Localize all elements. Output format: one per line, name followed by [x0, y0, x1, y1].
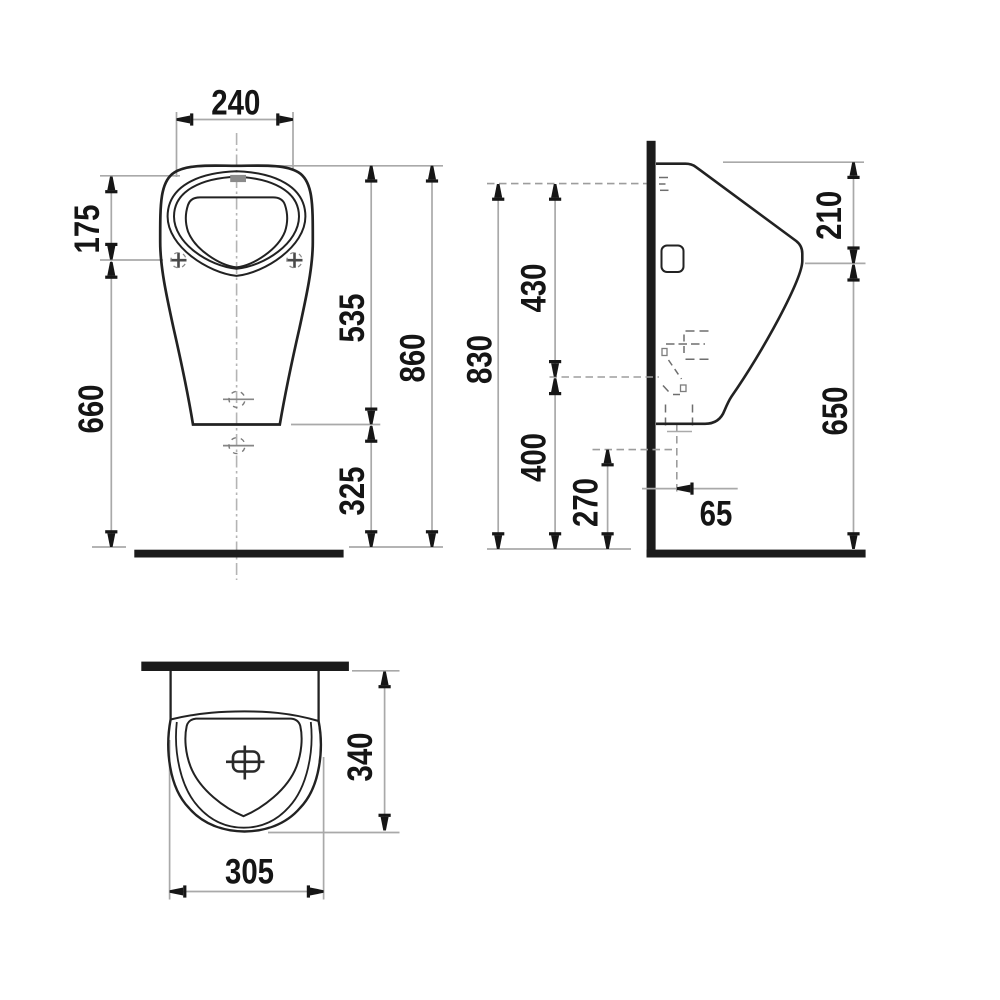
svg-text:270: 270 [566, 478, 605, 527]
svg-text:210: 210 [810, 191, 849, 240]
svg-text:660: 660 [72, 384, 111, 433]
svg-text:175: 175 [68, 204, 107, 253]
svg-text:430: 430 [514, 263, 553, 312]
svg-text:65: 65 [700, 494, 733, 533]
svg-text:240: 240 [211, 83, 260, 122]
svg-text:340: 340 [341, 732, 380, 781]
svg-text:860: 860 [393, 333, 432, 382]
svg-text:400: 400 [514, 433, 553, 482]
svg-text:535: 535 [333, 293, 372, 342]
svg-text:650: 650 [816, 386, 855, 435]
svg-text:325: 325 [333, 466, 372, 515]
svg-text:830: 830 [460, 335, 499, 384]
svg-text:305: 305 [225, 852, 274, 891]
